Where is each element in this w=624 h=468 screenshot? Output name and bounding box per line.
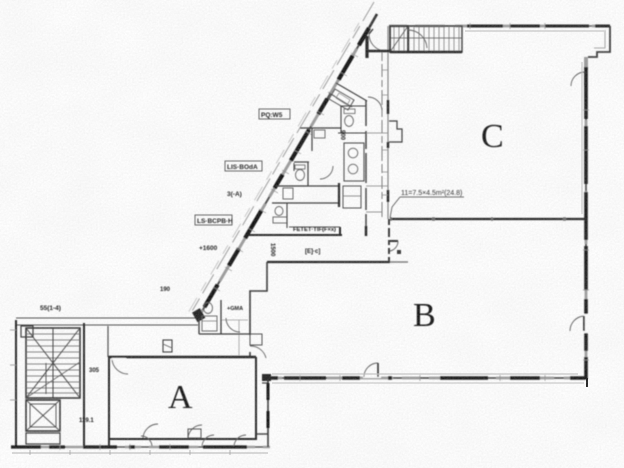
svg-text:3(-A): 3(-A) [227,191,242,198]
svg-text:190: 190 [160,287,171,293]
svg-text:+1600: +1600 [199,245,218,252]
svg-text:55(1-4): 55(1-4) [40,305,61,312]
svg-text:11=7.5×4.5m²(24.8): 11=7.5×4.5m²(24.8) [401,190,462,197]
svg-text:305: 305 [89,368,100,374]
svg-text:1500: 1500 [269,243,275,257]
svg-text:LS·BCPB·H: LS·BCPB·H [197,218,233,225]
svg-text:900: 900 [339,130,345,141]
svg-text:A: A [168,379,193,416]
svg-text:[E]·c]: [E]·c] [305,249,320,255]
svg-text:+GMA: +GMA [227,306,243,312]
svg-text:119.1: 119.1 [79,418,94,424]
svg-text:LIS·BOdA: LIS·BOdA [227,164,258,171]
svg-text:B: B [413,297,436,334]
svg-text:FETET·TIF(F×x): FETET·TIF(F×x) [293,227,336,233]
svg-text:C: C [481,118,504,155]
svg-text:PQ:W5: PQ:W5 [261,112,283,119]
